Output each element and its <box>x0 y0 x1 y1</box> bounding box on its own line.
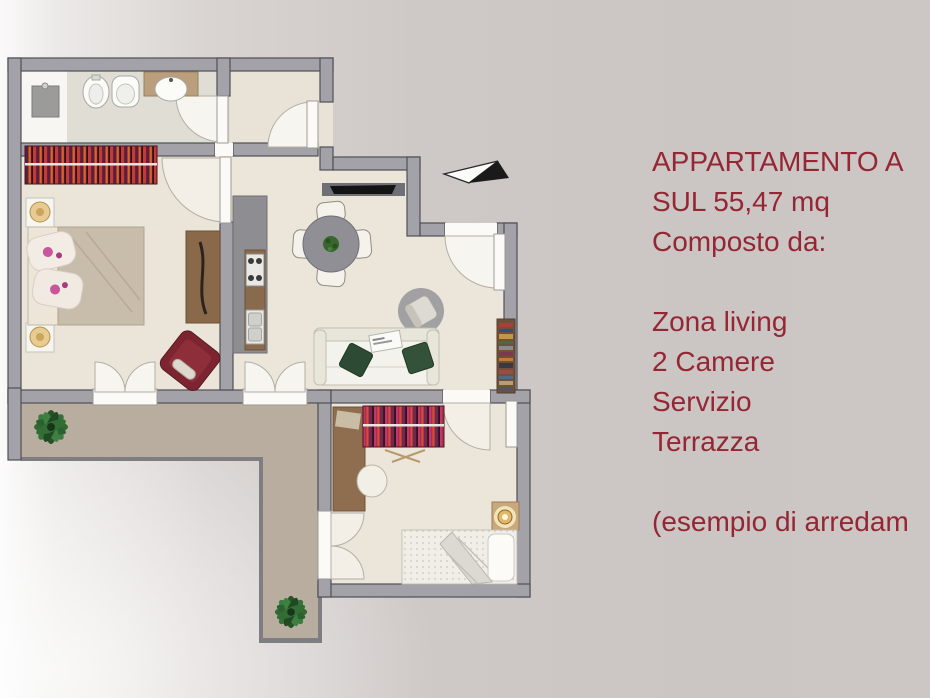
desk-chair <box>357 465 387 497</box>
plant-icon <box>275 596 307 628</box>
description-composed: Composto da: <box>652 222 909 262</box>
wardrobe <box>25 146 157 184</box>
description-title: APPARTAMENTO A <box>652 142 909 182</box>
shower <box>32 86 59 117</box>
bidet <box>83 75 109 108</box>
description-spacer <box>652 262 909 302</box>
desk <box>333 407 365 511</box>
terrace-floor <box>21 403 318 638</box>
description-item: Servizio <box>652 382 909 422</box>
nightstand <box>492 502 519 530</box>
single-bed <box>402 530 517 584</box>
north-arrow-icon <box>444 161 509 183</box>
description-item: Terrazza <box>652 422 909 462</box>
description-item: 2 Camere <box>652 342 909 382</box>
pillow <box>488 534 514 581</box>
kitchen-sink <box>246 310 264 344</box>
toilet <box>112 76 139 107</box>
double-bed <box>24 227 144 325</box>
plant-icon <box>34 410 68 444</box>
kitchen <box>233 196 267 353</box>
wardrobe <box>363 406 444 447</box>
nightstand <box>26 323 54 352</box>
slide: APPARTAMENTO A SUL 55,47 mq Composto da:… <box>0 0 930 698</box>
table-plant <box>323 236 339 252</box>
hall-passage <box>215 143 233 156</box>
dresser <box>186 231 220 323</box>
stove <box>246 254 264 286</box>
apartment-description: APPARTAMENTO A SUL 55,47 mq Composto da:… <box>652 142 909 542</box>
description-spacer <box>652 462 909 502</box>
nightstand <box>26 198 54 227</box>
description-note: (esempio di arredam <box>652 502 909 542</box>
tv <box>330 185 396 194</box>
description-area: SUL 55,47 mq <box>652 182 909 222</box>
description-item: Zona living <box>652 302 909 342</box>
sofa <box>314 328 439 385</box>
bookshelf <box>497 319 515 393</box>
